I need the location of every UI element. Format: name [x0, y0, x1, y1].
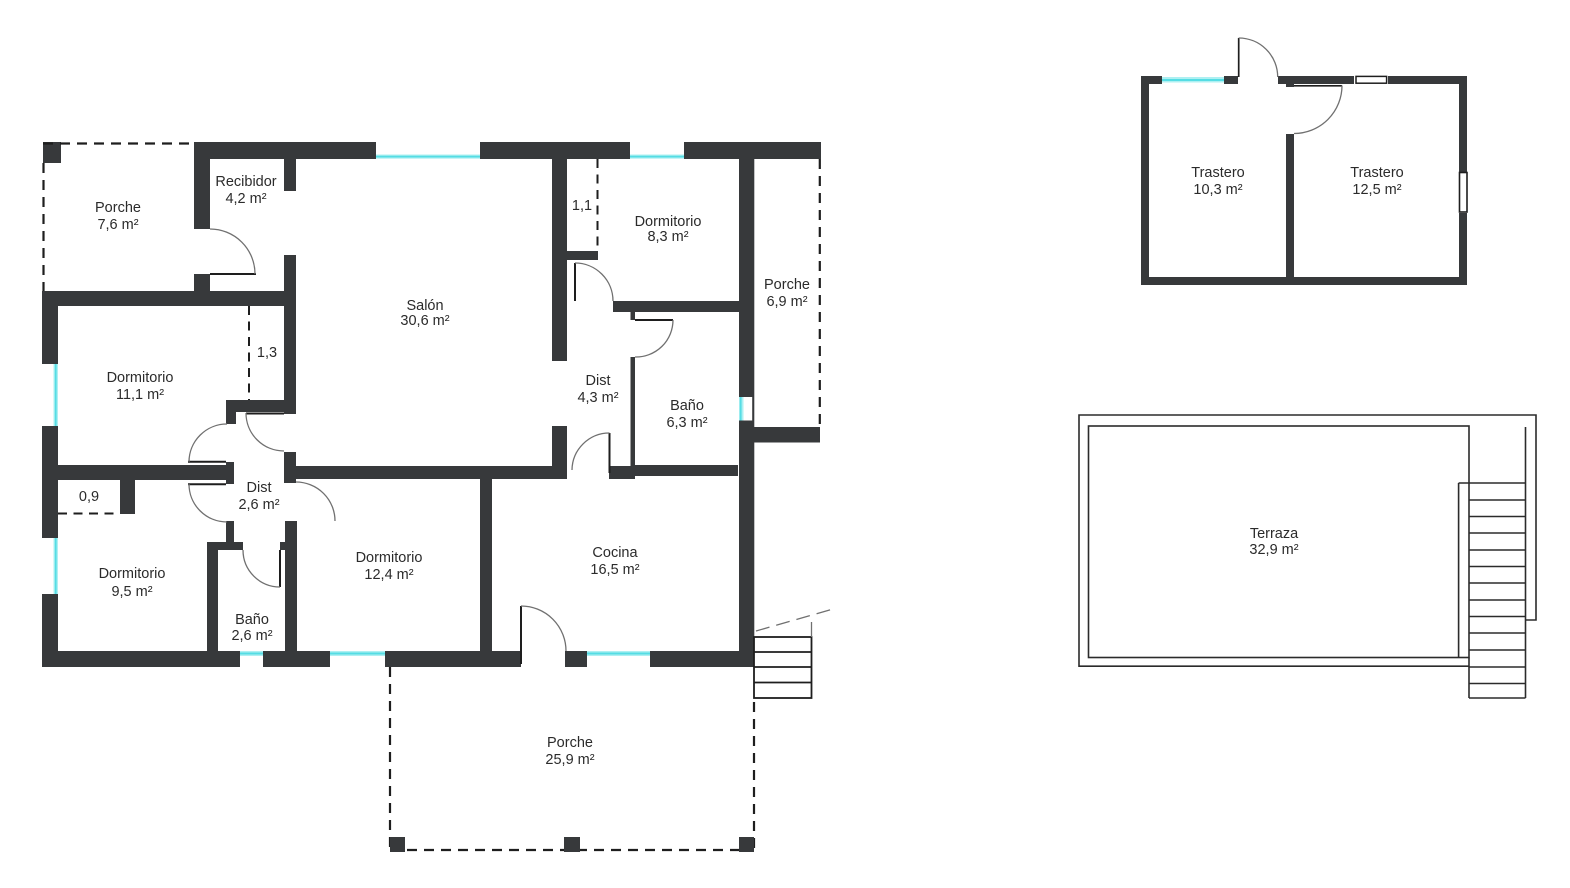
svg-text:7,6 m²: 7,6 m²	[97, 217, 138, 233]
svg-text:Trastero: Trastero	[1350, 165, 1403, 181]
svg-text:6,3 m²: 6,3 m²	[666, 415, 707, 431]
svg-text:16,5 m²: 16,5 m²	[590, 562, 639, 578]
svg-text:30,6 m²: 30,6 m²	[400, 313, 449, 329]
svg-text:1,3: 1,3	[257, 345, 277, 361]
svg-text:1,1: 1,1	[572, 198, 592, 214]
svg-text:25,9 m²: 25,9 m²	[545, 752, 594, 768]
svg-text:Porche: Porche	[547, 735, 593, 751]
svg-text:12,4 m²: 12,4 m²	[364, 567, 413, 583]
svg-text:Salón: Salón	[406, 298, 443, 314]
svg-text:12,5 m²: 12,5 m²	[1352, 182, 1401, 198]
svg-text:9,5 m²: 9,5 m²	[111, 584, 152, 600]
svg-text:Porche: Porche	[764, 277, 810, 293]
svg-text:Terraza: Terraza	[1250, 526, 1299, 542]
svg-text:Dormitorio: Dormitorio	[107, 370, 174, 386]
svg-text:Dist: Dist	[586, 373, 611, 389]
svg-text:8,3 m²: 8,3 m²	[647, 229, 688, 245]
svg-text:32,9 m²: 32,9 m²	[1249, 542, 1298, 558]
svg-text:Cocina: Cocina	[592, 545, 638, 561]
svg-text:Dormitorio: Dormitorio	[356, 550, 423, 566]
svg-text:4,3 m²: 4,3 m²	[577, 390, 618, 406]
svg-text:Dormitorio: Dormitorio	[635, 214, 702, 230]
svg-text:Dormitorio: Dormitorio	[99, 566, 166, 582]
svg-text:10,3 m²: 10,3 m²	[1193, 182, 1242, 198]
svg-text:2,6 m²: 2,6 m²	[238, 497, 279, 513]
svg-text:Dist: Dist	[247, 480, 272, 496]
svg-text:Porche: Porche	[95, 200, 141, 216]
svg-text:4,2 m²: 4,2 m²	[225, 191, 266, 207]
svg-text:Baño: Baño	[235, 612, 269, 628]
svg-text:0,9: 0,9	[79, 489, 99, 505]
svg-text:Recibidor: Recibidor	[215, 174, 276, 190]
svg-text:11,1 m²: 11,1 m²	[116, 387, 164, 403]
svg-text:Baño: Baño	[670, 398, 704, 414]
svg-text:6,9 m²: 6,9 m²	[766, 294, 807, 310]
svg-text:Trastero: Trastero	[1191, 165, 1244, 181]
svg-text:2,6 m²: 2,6 m²	[231, 628, 272, 644]
